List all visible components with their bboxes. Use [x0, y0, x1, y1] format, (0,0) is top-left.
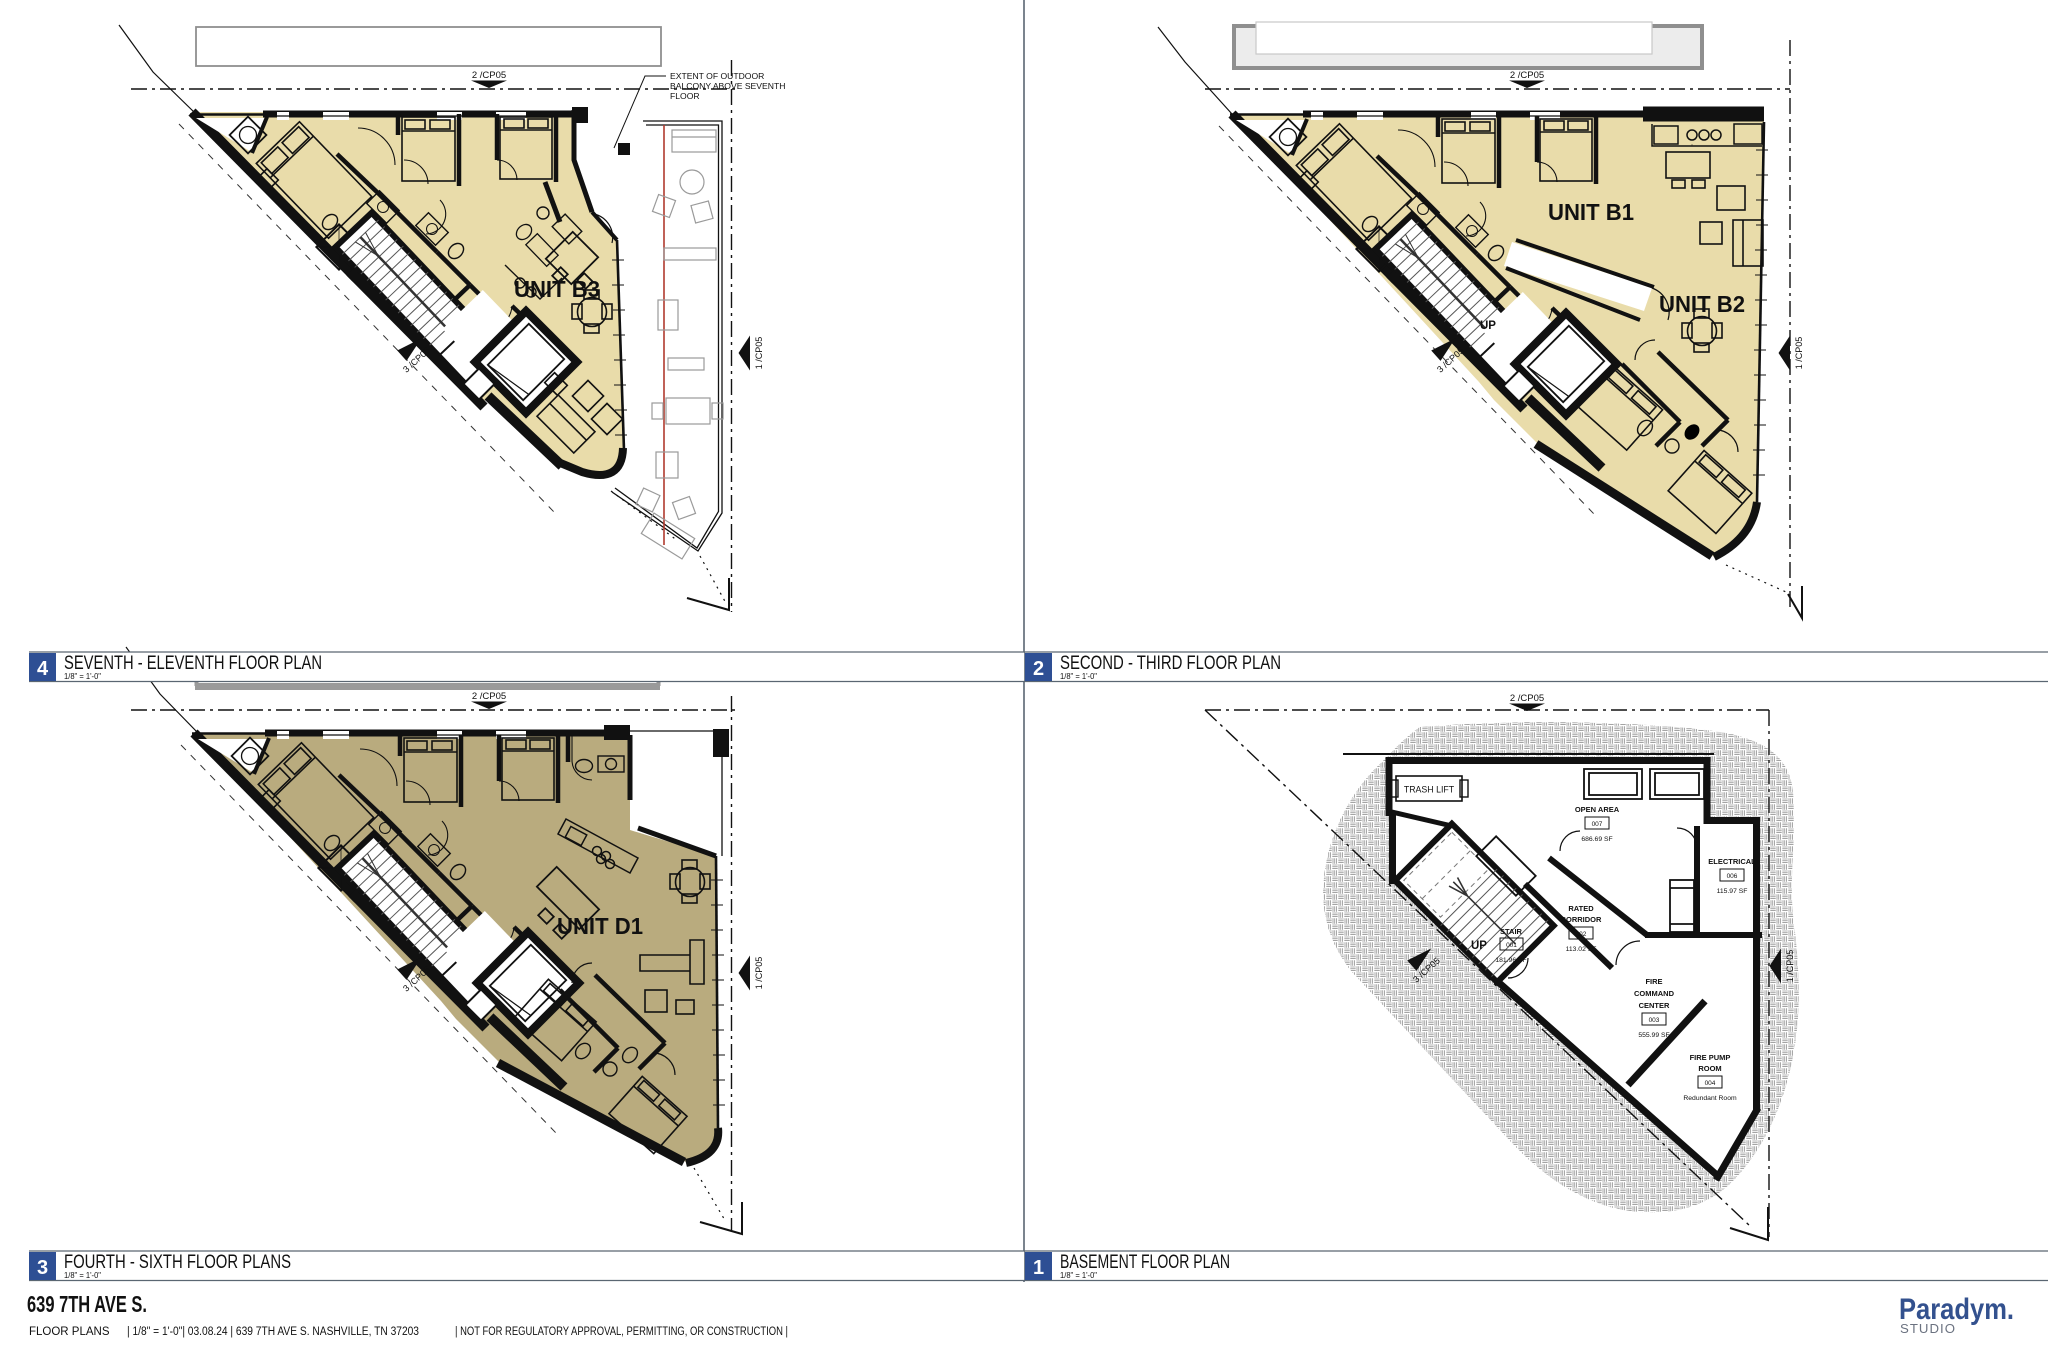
- svg-text:BASEMENT FLOOR PLAN: BASEMENT FLOOR PLAN: [1060, 1252, 1230, 1273]
- svg-text:1 /CP05: 1 /CP05: [1785, 950, 1795, 983]
- svg-text:EXTENT OF OUTDOOR: EXTENT OF OUTDOOR: [670, 71, 764, 81]
- svg-text:007: 007: [1592, 821, 1603, 828]
- svg-text:1: 1: [1033, 1257, 1044, 1279]
- svg-text:FIRE PUMP: FIRE PUMP: [1690, 1053, 1731, 1062]
- svg-text:CENTER: CENTER: [1639, 1001, 1670, 1010]
- svg-text:4: 4: [37, 658, 49, 680]
- svg-text:1 /CP05: 1 /CP05: [1794, 337, 1804, 370]
- svg-text:1/8" = 1'-0": 1/8" = 1'-0": [64, 672, 101, 681]
- svg-text:639 7TH AVE S.: 639 7TH AVE S.: [27, 1291, 147, 1317]
- svg-text:| 1/8" = 1'-0"| 03.08.24 |: | 1/8" = 1'-0"| 03.08.24 | 639 7TH AVE S…: [127, 1326, 419, 1338]
- svg-text:002: 002: [1576, 931, 1587, 938]
- svg-text:| NOT FOR REGULATORY APPROVAL: | NOT FOR REGULATORY APPROVAL, PERMITTIN…: [455, 1326, 788, 1338]
- svg-text:555.99 SF: 555.99 SF: [1638, 1032, 1669, 1039]
- svg-text:Redundant Room: Redundant Room: [1683, 1095, 1737, 1102]
- svg-text:115.97 SF: 115.97 SF: [1717, 888, 1748, 895]
- svg-text:003: 003: [1649, 1017, 1660, 1024]
- svg-text:ELECTRICAL: ELECTRICAL: [1708, 857, 1756, 866]
- svg-text:1/8" = 1'-0": 1/8" = 1'-0": [1060, 672, 1097, 681]
- svg-text:004: 004: [1705, 1080, 1716, 1087]
- svg-text:BALCONY ABOVE SEVENTH: BALCONY ABOVE SEVENTH: [670, 81, 785, 91]
- svg-text:TRASH LIFT: TRASH LIFT: [1404, 785, 1455, 795]
- svg-text:SEVENTH - ELEVENTH FLOOR PLAN: SEVENTH - ELEVENTH FLOOR PLAN: [64, 653, 322, 674]
- svg-text:1 /CP05: 1 /CP05: [754, 337, 764, 370]
- svg-text:FOURTH - SIXTH FLOOR PLANS: FOURTH - SIXTH FLOOR PLANS: [64, 1252, 291, 1273]
- svg-text:3: 3: [37, 1257, 48, 1279]
- svg-text:COMMAND: COMMAND: [1634, 989, 1675, 998]
- svg-text:UNIT B1: UNIT B1: [1548, 199, 1634, 225]
- svg-text:ROOM: ROOM: [1698, 1064, 1721, 1073]
- svg-text:FLOOR PLANS: FLOOR PLANS: [29, 1326, 110, 1338]
- svg-text:UNIT B2: UNIT B2: [1659, 291, 1745, 317]
- svg-text:FLOOR: FLOOR: [670, 91, 700, 101]
- svg-text:FIRE: FIRE: [1645, 977, 1662, 986]
- svg-text:1/8" = 1'-0": 1/8" = 1'-0": [1060, 1271, 1097, 1280]
- svg-text:UP: UP: [1471, 940, 1487, 952]
- svg-text:CORRIDOR: CORRIDOR: [1561, 915, 1602, 924]
- svg-text:SECOND - THIRD FLOOR PLAN: SECOND - THIRD FLOOR PLAN: [1060, 653, 1281, 674]
- svg-text:UP: UP: [1480, 320, 1496, 332]
- svg-text:181.96 SF: 181.96 SF: [1495, 957, 1526, 964]
- svg-text:UNIT B3: UNIT B3: [514, 276, 600, 302]
- svg-text:686.69 SF: 686.69 SF: [1581, 836, 1612, 843]
- svg-text:OPEN AREA: OPEN AREA: [1575, 805, 1620, 814]
- svg-text:STAIR: STAIR: [1500, 927, 1523, 936]
- svg-text:001: 001: [1506, 942, 1517, 949]
- svg-text:1 /CP05: 1 /CP05: [754, 957, 764, 990]
- svg-text:UNIT D1: UNIT D1: [557, 913, 643, 939]
- svg-text:006: 006: [1727, 873, 1738, 880]
- svg-text:STUDIO: STUDIO: [1900, 1321, 1956, 1336]
- svg-text:1/8" = 1'-0": 1/8" = 1'-0": [64, 1271, 101, 1280]
- svg-text:113.02 SF: 113.02 SF: [1566, 946, 1597, 953]
- svg-text:2: 2: [1033, 658, 1044, 680]
- svg-text:RATED: RATED: [1568, 904, 1594, 913]
